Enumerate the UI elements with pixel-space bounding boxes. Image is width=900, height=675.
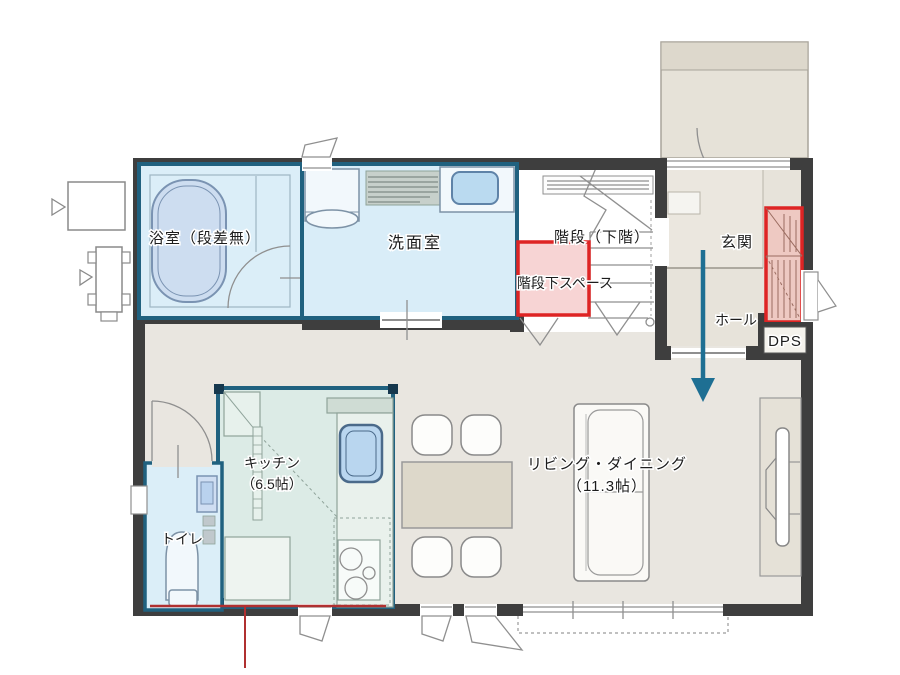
kitchen-island: [225, 537, 290, 600]
pantry-shelf: [253, 427, 262, 520]
washroom: 洗面室: [302, 164, 517, 318]
direction-triangle-icon: [52, 199, 65, 215]
chair: [412, 537, 452, 577]
floor-plan-svg: 浴室（段差無） 洗面室 階段（: [0, 0, 900, 675]
stove: [338, 540, 380, 600]
hall-sliding-door: [671, 348, 746, 358]
kitchen-size: （6.5帖）: [241, 476, 302, 492]
counter: [366, 171, 440, 205]
bathroom: 浴室（段差無）: [139, 164, 307, 318]
chair: [412, 415, 452, 455]
direction-triangle-icon: [80, 270, 92, 285]
chair: [461, 415, 501, 455]
under-stairs-label: 階段下スペース: [517, 275, 613, 291]
tv: [776, 428, 789, 546]
entrance-label: 玄関: [721, 234, 753, 251]
stair-hall-opening: [653, 218, 669, 266]
stairs-label: 階段（下階）: [554, 229, 650, 246]
chair: [461, 537, 501, 577]
front-door-opening: [667, 158, 790, 170]
dps-label: DPS: [768, 333, 802, 350]
dps-shaft: DPS: [758, 322, 813, 360]
living-dining-label: リビング・ダイニング: [527, 456, 687, 473]
water-heater-unit: [52, 182, 125, 230]
vanity-sink: [440, 167, 514, 212]
kitchen-sink: [340, 425, 382, 482]
hall-label: ホール: [715, 312, 757, 328]
kitchen-bottom-window: [298, 604, 332, 641]
living-dining-size: （11.3帖）: [567, 478, 647, 495]
bath-label: 浴室（段差無）: [149, 230, 261, 247]
floor-plan: 浴室（段差無） 洗面室 階段（: [0, 0, 900, 675]
top-awning-window: [302, 138, 337, 171]
washing-machine: [305, 169, 359, 228]
heat-pump-unit: [80, 247, 130, 321]
washroom-label: 洗面室: [388, 234, 442, 252]
kitchen-label: キッチン: [244, 455, 300, 471]
kitchen: キッチン （6.5帖）: [214, 384, 398, 607]
tv-board: [760, 398, 801, 576]
toilet-window: [131, 486, 147, 514]
dining-window-1: [420, 604, 453, 641]
entrance-side-window: [801, 270, 836, 328]
living-sliding-window: [518, 601, 728, 633]
dining-table: [402, 462, 512, 528]
upper-cabinet: [327, 398, 393, 413]
shoe-closet: [766, 208, 802, 322]
toilet-label: トイレ: [161, 531, 203, 547]
